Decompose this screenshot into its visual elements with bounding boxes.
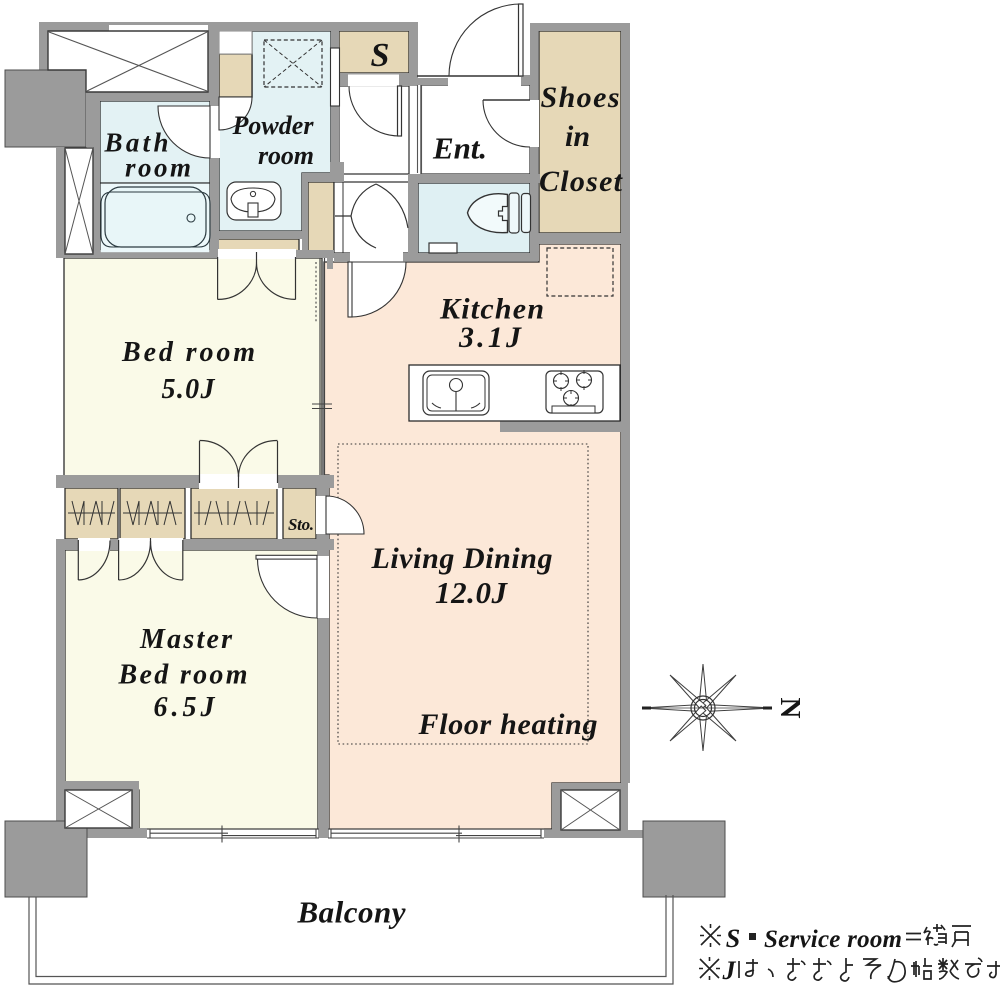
svg-text:Bed room: Bed room xyxy=(118,660,248,691)
svg-text:Ent.: Ent. xyxy=(432,131,487,166)
svg-text:Living Dining: Living Dining xyxy=(371,542,553,575)
svg-text:in: in xyxy=(565,120,590,153)
svg-text:Sto.: Sto. xyxy=(288,515,314,534)
svg-text:J: J xyxy=(722,956,737,985)
svg-text:Powder: Powder xyxy=(232,111,315,140)
svg-text:3.1J: 3.1J xyxy=(458,321,522,354)
svg-text:room: room xyxy=(125,153,191,183)
svg-text:12.0J: 12.0J xyxy=(435,575,509,610)
svg-text:Balcony: Balcony xyxy=(297,895,406,930)
svg-text:S: S xyxy=(371,37,390,74)
svg-text:S: S xyxy=(726,924,740,953)
svg-text:Shoes: Shoes xyxy=(541,81,620,114)
svg-text:room: room xyxy=(258,141,314,170)
svg-text:N: N xyxy=(774,698,806,719)
svg-text:Closet: Closet xyxy=(539,165,624,198)
svg-text:Service room: Service room xyxy=(764,926,902,953)
svg-text:5.0J: 5.0J xyxy=(162,374,216,405)
svg-text:Floor heating: Floor heating xyxy=(418,708,598,741)
svg-text:6.5J: 6.5J xyxy=(154,692,216,723)
